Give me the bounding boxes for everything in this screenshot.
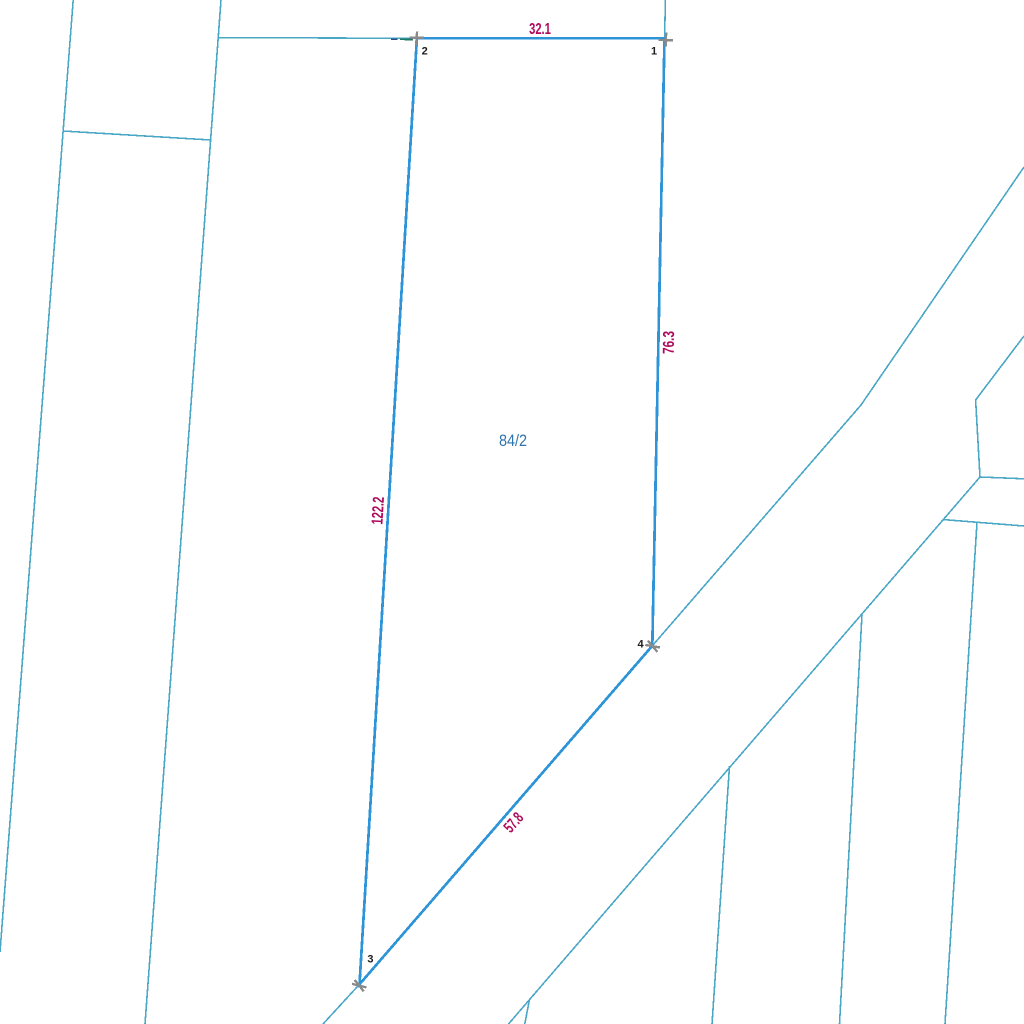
svg-text:2: 2	[422, 46, 428, 58]
svg-text:84/2: 84/2	[499, 431, 527, 450]
svg-text:76.3: 76.3	[661, 331, 678, 354]
svg-text:122.2: 122.2	[369, 496, 388, 525]
svg-text:3: 3	[367, 954, 373, 966]
svg-text:1: 1	[651, 45, 657, 57]
svg-text:32.1: 32.1	[529, 21, 551, 38]
svg-text:4: 4	[637, 639, 644, 651]
